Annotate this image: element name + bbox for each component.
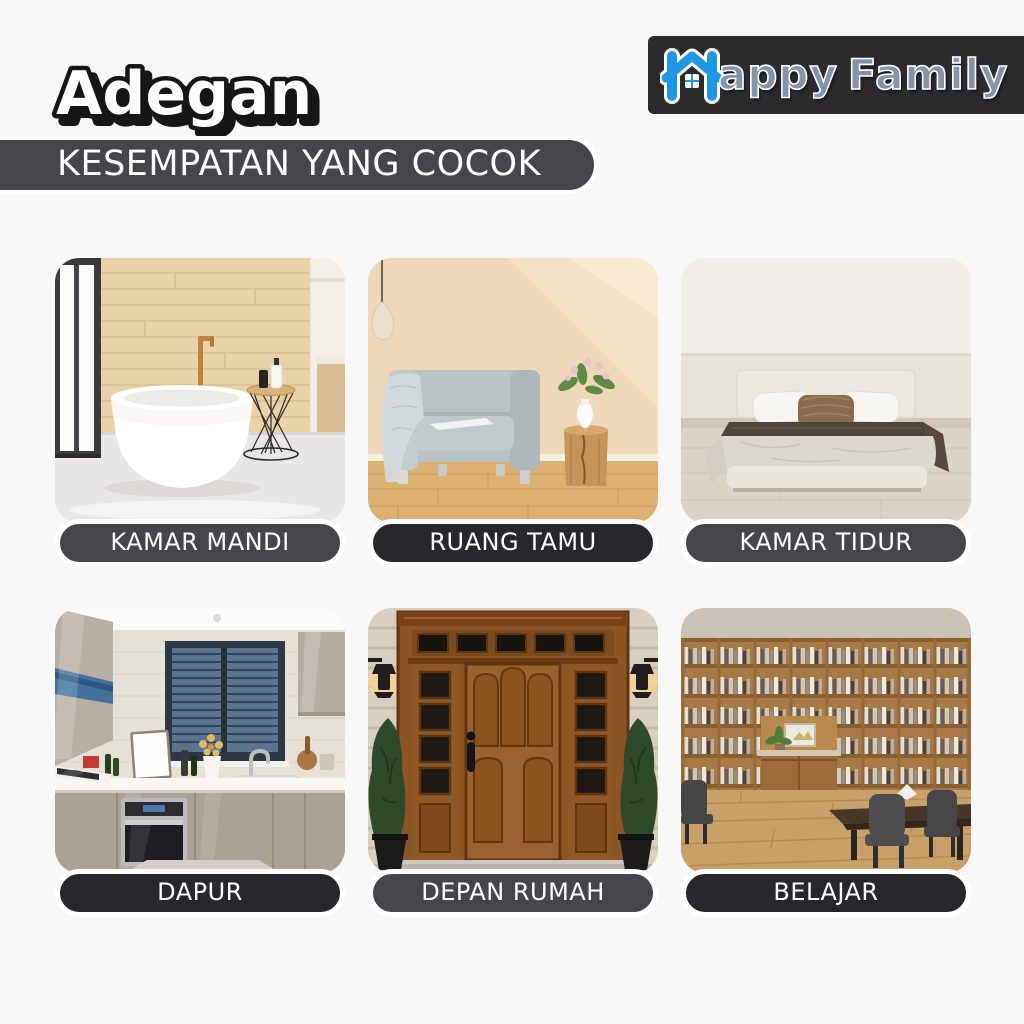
dapur-photo — [55, 608, 345, 873]
kamar-mandi-photo — [55, 258, 345, 523]
subtitle-text: KESEMPATAN YANG COCOK — [57, 144, 541, 186]
brand-logo: appy Family — [648, 36, 1024, 114]
bedroom-illustration — [681, 258, 971, 523]
card-depan-rumah: DEPAN RUMAH — [368, 608, 658, 873]
kamar-tidur-label: KAMAR TIDUR — [681, 519, 971, 567]
door-handle — [467, 732, 476, 773]
kitchen-window — [161, 641, 289, 767]
front-door-illustration — [368, 608, 658, 873]
dapur-label: DAPUR — [55, 869, 345, 917]
house-logo-icon — [660, 44, 724, 108]
svg-text:Adegan: Adegan — [56, 59, 312, 129]
card-kamar-mandi: KAMAR MANDI — [55, 258, 345, 523]
card-kamar-tidur: KAMAR TIDUR — [681, 258, 971, 523]
kamar-mandi-label: KAMAR MANDI — [55, 519, 345, 567]
study-room-illustration — [681, 608, 971, 873]
brand-word-appy: appy — [718, 54, 838, 96]
leaning-frame — [131, 731, 170, 779]
brand-word-family: Family — [848, 54, 1009, 96]
living-room-illustration — [368, 258, 658, 523]
ruang-tamu-label: RUANG TAMU — [368, 519, 658, 567]
ruang-tamu-photo — [368, 258, 658, 523]
subtitle-banner: KESEMPATAN YANG COCOK — [0, 136, 598, 194]
card-belajar: BELAJAR — [681, 608, 971, 873]
bathroom-illustration — [55, 258, 345, 523]
kamar-tidur-photo — [681, 258, 971, 523]
belajar-label: BELAJAR — [681, 869, 971, 917]
belajar-photo — [681, 608, 971, 873]
stump-table — [564, 425, 608, 486]
card-ruang-tamu: RUANG TAMU — [368, 258, 658, 523]
depan-rumah-label: DEPAN RUMAH — [368, 869, 658, 917]
bed — [705, 370, 949, 492]
flyer-page: Adegan Adegan KESEMPATAN YANG COCOK appy… — [0, 0, 1024, 1024]
oven — [121, 798, 187, 866]
kitchen-illustration — [55, 608, 345, 873]
room-cards-grid: KAMAR MANDI — [55, 258, 971, 873]
depan-rumah-photo — [368, 608, 658, 873]
card-dapur: DAPUR — [55, 608, 345, 873]
center-console — [757, 716, 841, 790]
